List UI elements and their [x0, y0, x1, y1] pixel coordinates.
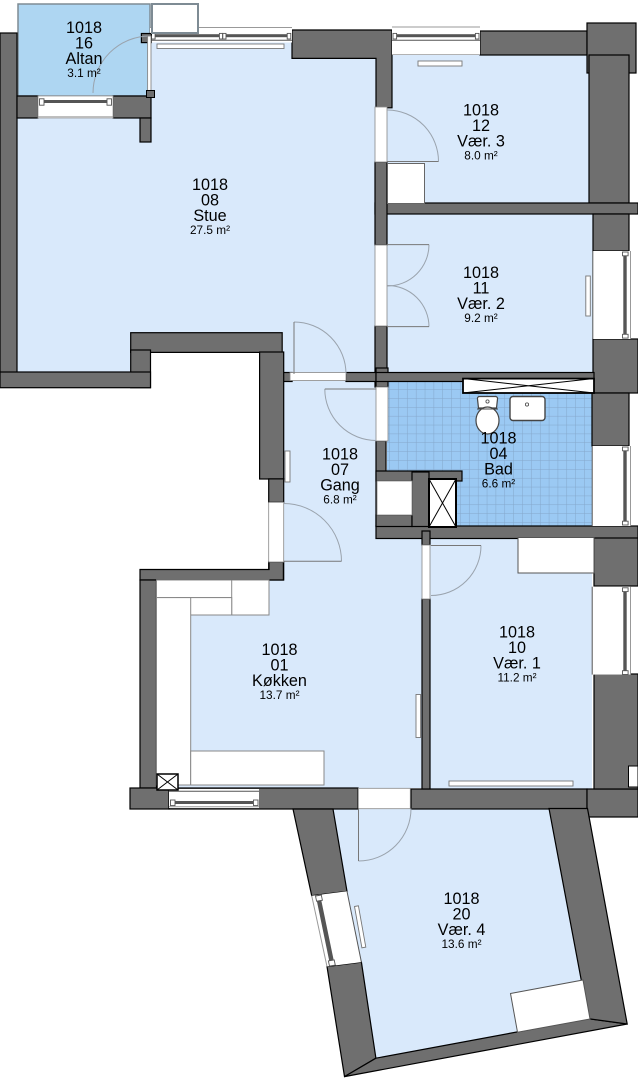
svg-text:13.6 m²: 13.6 m² — [442, 937, 482, 951]
svg-text:3.1 m²: 3.1 m² — [67, 66, 101, 80]
svg-text:9.2 m²: 9.2 m² — [464, 311, 498, 325]
svg-text:6.6 m²: 6.6 m² — [482, 477, 516, 491]
svg-text:11.2 m²: 11.2 m² — [497, 671, 536, 685]
svg-text:6.8 m²: 6.8 m² — [323, 493, 357, 507]
svg-text:13.7 m²: 13.7 m² — [260, 688, 300, 702]
svg-text:27.5 m²: 27.5 m² — [190, 223, 230, 237]
svg-text:8.0 m²: 8.0 m² — [464, 149, 498, 163]
